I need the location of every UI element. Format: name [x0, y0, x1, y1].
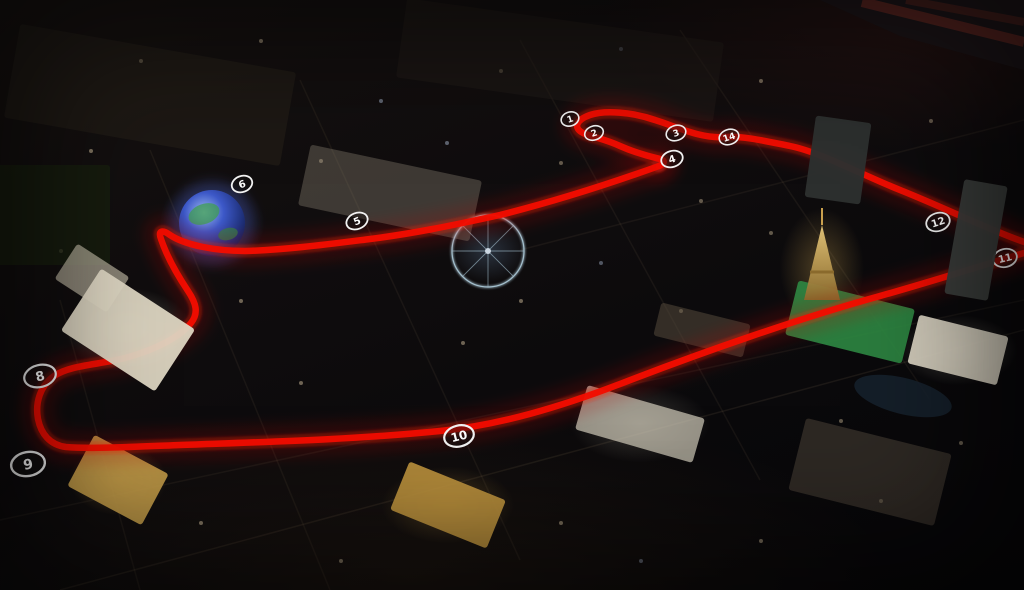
harmon-area-tower — [805, 116, 872, 205]
wynn-golf-area — [0, 165, 110, 265]
aerial-circuit-map: 1234568910111214 — [0, 0, 1024, 590]
city-blocks-north — [4, 24, 296, 166]
bellagio-lake — [850, 366, 956, 425]
airport-area — [820, 0, 1024, 70]
wheel-hub — [485, 248, 491, 254]
eiffel-body — [804, 225, 840, 300]
circuit-overlay-svg: 1234568910111214 — [0, 0, 1024, 590]
convention-lots — [396, 0, 724, 122]
buildings-back-layer — [0, 0, 1009, 549]
planet-hollywood-block — [788, 418, 951, 526]
bellagio-hotel — [907, 315, 1008, 386]
